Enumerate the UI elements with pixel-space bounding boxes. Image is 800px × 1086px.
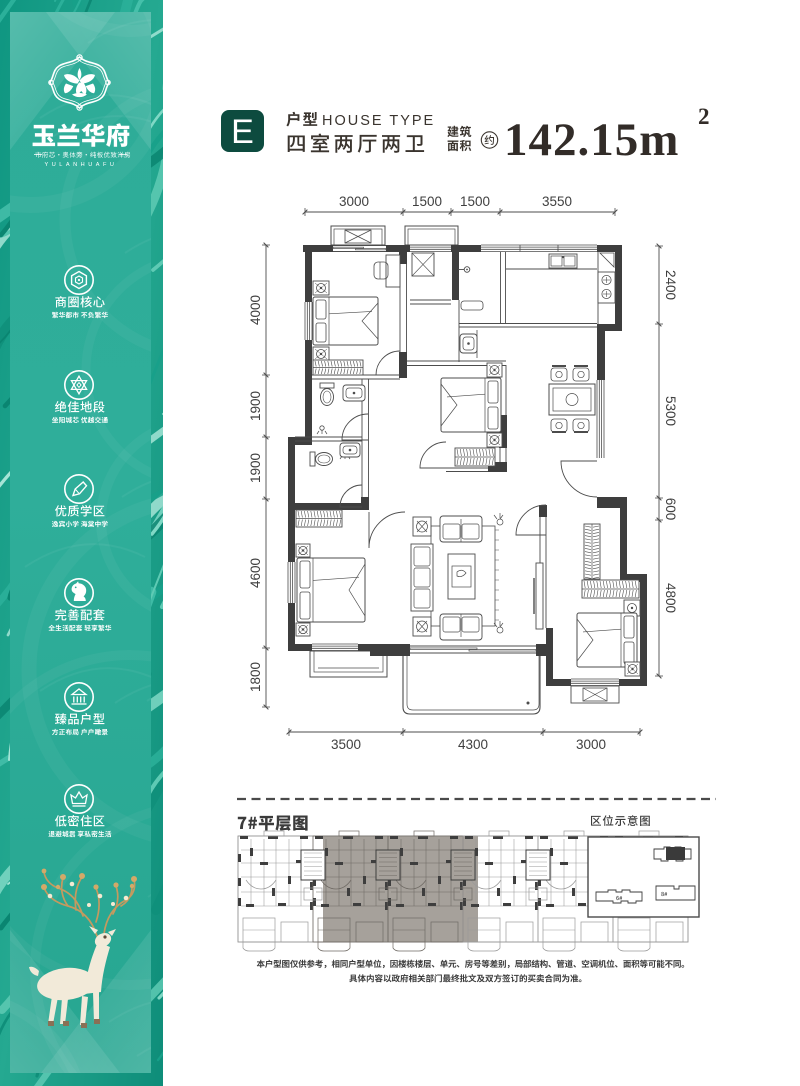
svg-text:5300: 5300 (663, 396, 678, 426)
svg-text:3000: 3000 (576, 737, 606, 752)
svg-text:4800: 4800 (663, 583, 678, 613)
svg-text:142.15m: 142.15m (504, 114, 679, 166)
svg-text:1500: 1500 (460, 194, 490, 209)
svg-text:4300: 4300 (458, 737, 488, 752)
svg-text:1900: 1900 (248, 391, 263, 421)
svg-text:1900: 1900 (248, 453, 263, 483)
svg-text:1500: 1500 (412, 194, 442, 209)
svg-text:3550: 3550 (542, 194, 572, 209)
svg-text:2: 2 (698, 104, 710, 129)
svg-text:1800: 1800 (248, 662, 263, 692)
svg-text:2400: 2400 (663, 270, 678, 300)
svg-text:600: 600 (663, 498, 678, 521)
svg-text:3500: 3500 (331, 737, 361, 752)
svg-text:3000: 3000 (339, 194, 369, 209)
svg-text:E: E (231, 113, 254, 151)
svg-text:YULANHUAFU: YULANHUAFU (45, 162, 118, 168)
svg-text:4600: 4600 (248, 558, 263, 588)
svg-text:HOUSE TYPE: HOUSE TYPE (322, 113, 435, 129)
svg-text:4000: 4000 (248, 295, 263, 325)
